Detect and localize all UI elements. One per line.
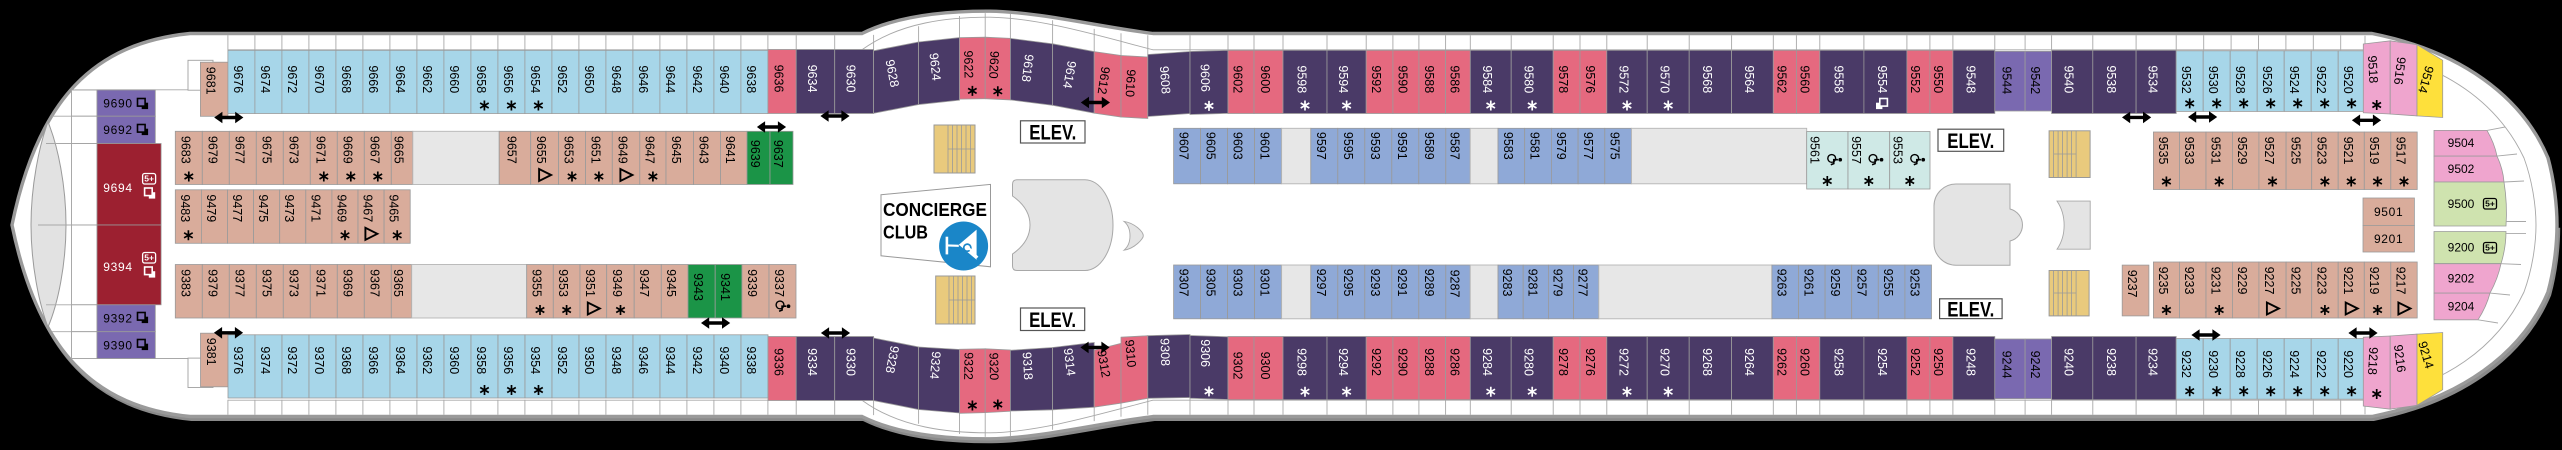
svg-text:9608: 9608: [1157, 66, 1173, 95]
svg-text:5+: 5+: [144, 253, 154, 263]
svg-text:9641: 9641: [723, 136, 737, 164]
svg-text:9223: 9223: [2314, 267, 2328, 295]
svg-text:9383: 9383: [178, 269, 192, 297]
svg-text:9589: 9589: [1422, 132, 1436, 160]
svg-text:9283: 9283: [1500, 269, 1514, 297]
svg-text:9598: 9598: [1295, 65, 1309, 93]
svg-text:9639: 9639: [748, 140, 762, 168]
svg-text:9533: 9533: [2182, 137, 2196, 165]
svg-text:9377: 9377: [232, 269, 246, 297]
svg-text:9289: 9289: [1422, 269, 1436, 297]
svg-text:9518: 9518: [2365, 55, 2380, 84]
svg-text:9219: 9219: [2367, 267, 2381, 295]
svg-text:9610: 9610: [1123, 69, 1139, 98]
svg-text:9367: 9367: [367, 269, 381, 297]
svg-text:9303: 9303: [1231, 269, 1245, 297]
svg-text:9597: 9597: [1314, 132, 1328, 160]
svg-text:9672: 9672: [285, 65, 299, 93]
svg-text:9337: 9337: [772, 269, 786, 297]
svg-text:9257: 9257: [1855, 269, 1869, 297]
svg-text:9381: 9381: [204, 338, 218, 366]
svg-text:9347: 9347: [637, 269, 651, 297]
svg-text:ELEV.: ELEV.: [1947, 129, 1994, 153]
svg-text:9652: 9652: [555, 65, 569, 93]
svg-text:9295: 9295: [1341, 269, 1355, 297]
svg-text:9583: 9583: [1501, 132, 1515, 160]
svg-text:9519: 9519: [2367, 137, 2381, 165]
svg-text:9668: 9668: [339, 65, 353, 93]
svg-text:9657: 9657: [505, 136, 519, 164]
svg-text:9558: 9558: [1831, 65, 1845, 93]
svg-text:9373: 9373: [286, 269, 300, 297]
svg-text:9586: 9586: [1447, 65, 1461, 93]
svg-text:9346: 9346: [636, 346, 650, 374]
svg-text:9675: 9675: [259, 136, 273, 164]
svg-text:CONCIERGE: CONCIERGE: [883, 200, 987, 220]
svg-text:9673: 9673: [286, 136, 300, 164]
svg-text:9564: 9564: [1742, 65, 1756, 93]
svg-text:9339: 9339: [745, 269, 759, 297]
svg-text:9218: 9218: [2365, 347, 2380, 376]
svg-text:9676: 9676: [231, 65, 245, 93]
svg-text:9202: 9202: [2448, 271, 2475, 285]
svg-text:9662: 9662: [420, 65, 434, 93]
svg-text:9368: 9368: [339, 346, 353, 374]
svg-text:9369: 9369: [340, 269, 354, 297]
svg-text:9294: 9294: [1336, 348, 1350, 376]
svg-text:9540: 9540: [2062, 65, 2076, 93]
svg-text:9307: 9307: [1177, 269, 1191, 297]
svg-text:9220: 9220: [2341, 350, 2355, 378]
svg-text:9529: 9529: [2235, 137, 2249, 165]
svg-text:9469: 9469: [335, 194, 349, 222]
svg-text:9371: 9371: [313, 269, 327, 297]
svg-text:9232: 9232: [2179, 350, 2193, 378]
svg-text:9390: 9390: [103, 339, 133, 353]
svg-text:9601: 9601: [1258, 132, 1272, 160]
svg-text:9584: 9584: [1480, 65, 1494, 93]
svg-text:9244: 9244: [1999, 351, 2013, 379]
svg-text:9504: 9504: [2448, 136, 2475, 150]
svg-text:9288: 9288: [1422, 348, 1436, 376]
svg-text:9647: 9647: [642, 136, 656, 164]
svg-text:9370: 9370: [312, 346, 326, 374]
svg-text:9290: 9290: [1395, 348, 1409, 376]
svg-text:9572: 9572: [1617, 65, 1631, 93]
svg-text:9353: 9353: [556, 269, 570, 297]
svg-text:9634: 9634: [805, 65, 819, 93]
svg-text:ELEV.: ELEV.: [1029, 308, 1076, 332]
svg-text:9252: 9252: [1908, 348, 1922, 376]
svg-text:9534: 9534: [2146, 65, 2160, 93]
svg-text:9544: 9544: [1999, 66, 2013, 94]
svg-text:9230: 9230: [2206, 350, 2220, 378]
svg-text:9588: 9588: [1422, 65, 1436, 93]
svg-text:9261: 9261: [1801, 269, 1815, 297]
svg-text:9366: 9366: [366, 346, 380, 374]
svg-text:5+: 5+: [144, 174, 154, 184]
svg-text:9264: 9264: [1742, 348, 1756, 376]
svg-text:9683: 9683: [178, 136, 192, 164]
svg-text:9344: 9344: [663, 346, 677, 374]
svg-text:9375: 9375: [259, 269, 273, 297]
svg-text:9310: 9310: [1122, 339, 1138, 368]
svg-text:9594: 9594: [1336, 65, 1350, 93]
svg-text:9554: 9554: [1875, 65, 1889, 93]
svg-text:9318: 9318: [1020, 352, 1036, 381]
svg-text:9677: 9677: [232, 136, 246, 164]
svg-text:9671: 9671: [313, 136, 327, 164]
svg-text:9262: 9262: [1774, 348, 1788, 376]
svg-text:9593: 9593: [1368, 132, 1382, 160]
svg-text:9340: 9340: [717, 346, 731, 374]
svg-text:9297: 9297: [1314, 269, 1328, 297]
svg-text:9532: 9532: [2179, 66, 2193, 94]
svg-text:5+: 5+: [2485, 199, 2495, 209]
svg-text:ELEV.: ELEV.: [1029, 121, 1076, 145]
svg-text:9538: 9538: [2104, 65, 2118, 93]
svg-text:9666: 9666: [366, 65, 380, 93]
svg-text:9254: 9254: [1875, 348, 1889, 376]
svg-text:9268: 9268: [1700, 348, 1714, 376]
svg-text:9636: 9636: [772, 65, 786, 93]
svg-text:9348: 9348: [609, 346, 623, 374]
svg-text:9360: 9360: [447, 346, 461, 374]
svg-text:9475: 9475: [256, 194, 270, 222]
svg-text:9235: 9235: [2156, 267, 2170, 295]
svg-text:9280: 9280: [1522, 348, 1536, 376]
svg-text:9590: 9590: [1395, 65, 1409, 93]
svg-text:CLUB: CLUB: [883, 223, 928, 243]
svg-text:9535: 9535: [2156, 137, 2170, 165]
svg-text:9526: 9526: [2260, 66, 2274, 94]
svg-text:9591: 9591: [1395, 132, 1409, 160]
svg-text:9579: 9579: [1554, 132, 1568, 160]
svg-text:9603: 9603: [1231, 132, 1245, 160]
svg-text:9345: 9345: [664, 269, 678, 297]
svg-text:9607: 9607: [1177, 132, 1191, 160]
svg-text:9306: 9306: [1198, 339, 1212, 367]
svg-text:9605: 9605: [1204, 132, 1218, 160]
svg-text:9278: 9278: [1556, 348, 1570, 376]
svg-text:9664: 9664: [393, 65, 407, 93]
svg-text:9681: 9681: [204, 67, 218, 95]
svg-text:9624: 9624: [927, 52, 944, 81]
svg-text:9528: 9528: [2233, 66, 2247, 94]
svg-text:9259: 9259: [1828, 269, 1842, 297]
svg-text:9355: 9355: [530, 269, 544, 297]
svg-text:9570: 9570: [1658, 65, 1672, 93]
svg-text:9334: 9334: [805, 348, 819, 376]
svg-text:9365: 9365: [391, 269, 405, 297]
svg-text:9655: 9655: [534, 136, 548, 164]
svg-text:9301: 9301: [1258, 269, 1272, 297]
svg-text:9255: 9255: [1881, 269, 1895, 297]
svg-text:9229: 9229: [2235, 267, 2249, 295]
svg-text:9362: 9362: [420, 346, 434, 374]
svg-text:9374: 9374: [258, 346, 272, 374]
svg-text:9642: 9642: [690, 65, 704, 93]
svg-text:9258: 9258: [1831, 348, 1845, 376]
svg-text:9287: 9287: [1448, 270, 1462, 298]
svg-text:9548: 9548: [1963, 65, 1977, 93]
svg-text:9577: 9577: [1581, 132, 1595, 160]
svg-text:9238: 9238: [2104, 348, 2118, 376]
svg-text:9637: 9637: [771, 140, 785, 168]
svg-text:9524: 9524: [2287, 66, 2301, 94]
svg-text:9286: 9286: [1447, 348, 1461, 376]
svg-text:9343: 9343: [691, 273, 705, 301]
svg-text:9204: 9204: [2448, 300, 2475, 314]
svg-text:9669: 9669: [340, 136, 354, 164]
svg-text:9394: 9394: [103, 260, 133, 274]
svg-text:ELEV.: ELEV.: [1947, 297, 1994, 321]
svg-text:9592: 9592: [1369, 65, 1383, 93]
svg-text:9356: 9356: [501, 346, 515, 374]
svg-text:9224: 9224: [2287, 350, 2301, 378]
svg-text:9658: 9658: [474, 65, 488, 93]
svg-text:9638: 9638: [744, 65, 758, 93]
svg-text:9465: 9465: [387, 194, 401, 222]
svg-text:9679: 9679: [205, 136, 219, 164]
svg-text:9525: 9525: [2288, 137, 2302, 165]
svg-text:9250: 9250: [1931, 348, 1945, 376]
svg-text:9226: 9226: [2260, 350, 2274, 378]
svg-text:9523: 9523: [2314, 137, 2328, 165]
svg-text:9575: 9575: [1608, 132, 1622, 160]
svg-text:9646: 9646: [636, 65, 650, 93]
svg-text:9351: 9351: [583, 269, 597, 297]
svg-text:9228: 9228: [2233, 350, 2247, 378]
svg-text:9694: 9694: [103, 181, 133, 195]
svg-text:9260: 9260: [1798, 348, 1812, 376]
svg-text:9281: 9281: [1525, 269, 1539, 297]
svg-text:9501: 9501: [2374, 205, 2404, 219]
svg-text:9500: 9500: [2448, 197, 2475, 211]
svg-text:9222: 9222: [2314, 350, 2328, 378]
svg-text:9552: 9552: [1908, 65, 1922, 93]
svg-text:9550: 9550: [1931, 65, 1945, 93]
svg-text:9690: 9690: [103, 97, 133, 111]
svg-text:9372: 9372: [285, 346, 299, 374]
svg-text:9622: 9622: [961, 50, 975, 78]
svg-text:9645: 9645: [669, 136, 683, 164]
svg-text:9606: 9606: [1198, 64, 1213, 92]
svg-text:9530: 9530: [2206, 66, 2220, 94]
svg-text:9531: 9531: [2209, 137, 2223, 165]
svg-text:9364: 9364: [393, 346, 407, 374]
svg-text:9225: 9225: [2288, 267, 2302, 295]
svg-text:9292: 9292: [1369, 348, 1383, 376]
svg-text:9580: 9580: [1522, 65, 1536, 93]
svg-text:9674: 9674: [258, 65, 272, 93]
svg-text:9667: 9667: [367, 136, 381, 164]
svg-text:9560: 9560: [1798, 65, 1812, 93]
svg-text:9200: 9200: [2448, 241, 2475, 255]
svg-text:9665: 9665: [392, 136, 406, 164]
svg-text:9553: 9553: [1891, 136, 1905, 164]
svg-text:9284: 9284: [1480, 348, 1494, 376]
svg-text:9483: 9483: [178, 194, 192, 222]
svg-text:9352: 9352: [555, 346, 569, 374]
svg-text:9473: 9473: [282, 194, 296, 222]
svg-text:9291: 9291: [1395, 269, 1409, 297]
svg-text:9272: 9272: [1617, 348, 1631, 376]
svg-text:9660: 9660: [447, 65, 461, 93]
svg-text:9477: 9477: [230, 194, 244, 222]
svg-text:9479: 9479: [204, 194, 218, 222]
svg-text:9324: 9324: [927, 351, 943, 380]
svg-text:9578: 9578: [1556, 65, 1570, 93]
svg-text:9227: 9227: [2262, 267, 2276, 295]
svg-text:9527: 9527: [2262, 137, 2276, 165]
svg-text:9670: 9670: [312, 65, 326, 93]
svg-text:9620: 9620: [986, 51, 1001, 79]
svg-text:9240: 9240: [2062, 348, 2076, 376]
svg-text:9305: 9305: [1204, 269, 1218, 297]
svg-text:9233: 9233: [2182, 267, 2196, 295]
svg-text:9298: 9298: [1295, 348, 1309, 376]
svg-text:9349: 9349: [610, 269, 624, 297]
svg-text:9320: 9320: [987, 352, 1001, 380]
svg-text:5+: 5+: [2485, 243, 2495, 253]
svg-text:9248: 9248: [1963, 348, 1977, 376]
svg-text:9576: 9576: [1583, 65, 1597, 93]
svg-text:9234: 9234: [2146, 348, 2160, 376]
svg-text:9640: 9640: [717, 65, 731, 93]
svg-text:9277: 9277: [1576, 269, 1590, 297]
svg-text:9270: 9270: [1658, 348, 1672, 376]
svg-text:9521: 9521: [2341, 137, 2355, 165]
svg-text:9242: 9242: [2028, 351, 2042, 379]
svg-text:9342: 9342: [690, 346, 704, 374]
svg-text:9600: 9600: [1258, 65, 1272, 93]
svg-text:9308: 9308: [1158, 338, 1173, 366]
svg-text:9651: 9651: [588, 136, 602, 164]
svg-text:9358: 9358: [474, 346, 488, 374]
svg-text:9602: 9602: [1231, 65, 1245, 93]
svg-text:9263: 9263: [1775, 269, 1789, 297]
svg-text:9231: 9231: [2209, 267, 2223, 295]
svg-text:9650: 9650: [582, 65, 596, 93]
svg-text:9338: 9338: [744, 346, 758, 374]
svg-text:9201: 9201: [2374, 232, 2404, 246]
svg-text:9562: 9562: [1774, 65, 1788, 93]
svg-text:9471: 9471: [308, 194, 322, 222]
svg-text:9237: 9237: [2125, 270, 2139, 298]
svg-text:9587: 9587: [1448, 132, 1462, 160]
svg-text:9653: 9653: [562, 136, 576, 164]
svg-text:9595: 9595: [1341, 132, 1355, 160]
svg-text:9221: 9221: [2341, 267, 2355, 295]
svg-text:9341: 9341: [718, 273, 732, 301]
svg-text:9557: 9557: [1849, 136, 1863, 164]
svg-text:9643: 9643: [697, 136, 711, 164]
svg-text:9581: 9581: [1528, 132, 1542, 160]
svg-text:9376: 9376: [231, 346, 245, 374]
svg-text:9336: 9336: [772, 348, 786, 376]
svg-text:9644: 9644: [663, 65, 677, 93]
svg-text:9692: 9692: [103, 123, 133, 137]
svg-text:9517: 9517: [2394, 137, 2408, 165]
svg-text:9654: 9654: [528, 65, 542, 93]
svg-text:9276: 9276: [1583, 348, 1597, 376]
svg-text:9522: 9522: [2314, 66, 2328, 94]
svg-text:9354: 9354: [528, 346, 542, 374]
svg-text:9520: 9520: [2341, 66, 2355, 94]
svg-text:9467: 9467: [361, 194, 375, 222]
svg-text:9253: 9253: [1908, 269, 1922, 297]
svg-text:9279: 9279: [1551, 269, 1565, 297]
svg-text:9379: 9379: [205, 269, 219, 297]
svg-text:9293: 9293: [1368, 269, 1382, 297]
svg-text:9350: 9350: [582, 346, 596, 374]
svg-text:9656: 9656: [501, 65, 515, 93]
svg-text:9568: 9568: [1700, 65, 1714, 93]
svg-text:9561: 9561: [1808, 136, 1822, 164]
svg-text:9302: 9302: [1231, 352, 1245, 380]
svg-text:9649: 9649: [616, 136, 630, 164]
svg-text:9648: 9648: [609, 65, 623, 93]
svg-text:9630: 9630: [844, 65, 858, 93]
svg-text:9330: 9330: [844, 348, 858, 376]
svg-text:9502: 9502: [2448, 162, 2475, 176]
svg-text:9300: 9300: [1258, 352, 1272, 380]
svg-text:9542: 9542: [2028, 66, 2042, 94]
svg-text:9322: 9322: [961, 352, 975, 380]
svg-text:9392: 9392: [103, 312, 133, 326]
svg-text:9217: 9217: [2394, 267, 2408, 295]
